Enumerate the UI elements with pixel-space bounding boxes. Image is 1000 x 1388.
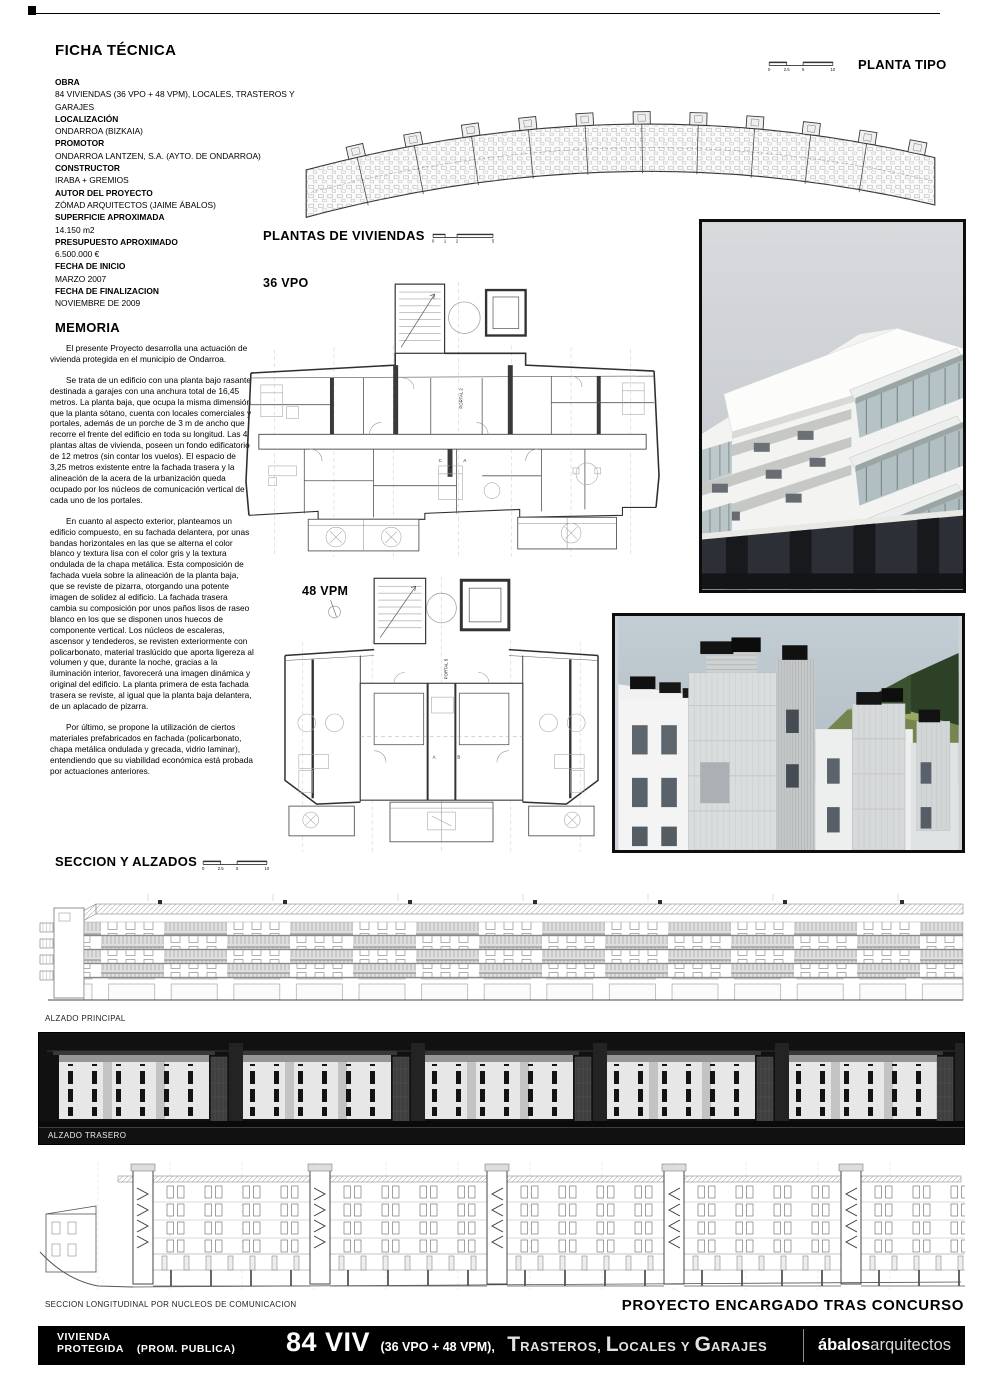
core-mark: B — [450, 464, 453, 469]
field-value: 6.500.000 € — [55, 248, 311, 260]
plantas-heading: PLANTAS DE VIVIENDAS — [263, 228, 425, 243]
svg-text:2.5: 2.5 — [218, 866, 225, 871]
end-tower — [54, 908, 84, 998]
footer-title: 84 VIV (36 VPO + 48 VPM), TRASTEROS, LOC… — [286, 1327, 767, 1358]
footer-protegida: PROTEGIDA — [57, 1343, 124, 1355]
compass — [329, 600, 341, 618]
field-label: FECHA DE INICIO — [55, 260, 311, 272]
svg-text:0: 0 — [768, 67, 771, 72]
top-rule — [28, 13, 940, 14]
photo-front-facade — [699, 219, 966, 593]
scale-bar-planta-tipo: 0 2.5 5 10 — [766, 57, 836, 72]
corridor — [259, 434, 646, 449]
memoria-paragraph: En cuanto al aspecto exterior, planteamo… — [50, 516, 254, 712]
scale-bar-seccion: 0 2.5 5 10 — [200, 856, 270, 871]
footer-left-block: VIVIENDA PROTEGIDA(PROM. PUBLICA) — [57, 1332, 235, 1355]
seccion-heading: SECCION Y ALZADOS — [55, 854, 197, 869]
field-value: ONDARROA LANTZEN, S.A. (AYTO. DE ONDARRO… — [55, 150, 311, 162]
ficha-fields: OBRA 84 VIVIENDAS (36 VPO + 48 VPM), LOC… — [55, 76, 311, 310]
field-label: LOCALIZACIÓN — [55, 113, 311, 125]
footer-84viv: 84 VIV — [286, 1327, 370, 1357]
footer-divider — [803, 1329, 804, 1362]
svg-text:10: 10 — [264, 866, 269, 871]
field-value: ZÓMAD ARQUITECTOS (JAIME ÁBALOS) — [55, 199, 311, 211]
footer-vpo-vpm: (36 VPO + 48 VPM), — [381, 1340, 495, 1354]
portal-label: PORTAL 5 — [443, 658, 448, 679]
svg-text:2: 2 — [456, 239, 459, 244]
memoria-paragraph: Por último, se propone la utilización de… — [50, 722, 254, 777]
svg-text:2.5: 2.5 — [784, 67, 791, 72]
stair-core — [395, 284, 525, 353]
elevator — [461, 580, 509, 630]
central-block — [360, 683, 522, 800]
plan-36vpo-drawing: PORTAL 2 C B A — [245, 278, 660, 560]
seccion-longitudinal-label: SECCION LONGITUDINAL POR NUCLEOS DE COMU… — [45, 1300, 296, 1309]
svg-text:1: 1 — [444, 239, 447, 244]
roof-band — [118, 1176, 961, 1182]
ground-floor — [84, 978, 963, 1000]
core-mark: B — [457, 755, 460, 760]
svg-text:5: 5 — [802, 67, 805, 72]
svg-text:5: 5 — [236, 866, 239, 871]
core-mark: A — [433, 755, 436, 760]
svg-text:0: 0 — [432, 239, 435, 244]
memoria-text: El presente Proyecto desarrolla una actu… — [50, 343, 254, 787]
memoria-paragraph: El presente Proyecto desarrolla una actu… — [50, 343, 254, 365]
alzado-principal-drawing — [38, 892, 965, 1010]
plan-48vpm-drawing: PORTAL 5 A B — [283, 572, 600, 855]
field-value: IRABA + GREMIOS — [55, 174, 311, 186]
core-mark: A — [463, 458, 466, 463]
field-label: SUPERFICIE APROXIMADA — [55, 211, 311, 223]
alzado-principal-label: ALZADO PRINCIPAL — [45, 1014, 126, 1023]
planta-tipo-heading: PLANTA TIPO — [858, 57, 947, 72]
award-note: PROYECTO ENCARGADO TRAS CONCURSO — [622, 1297, 964, 1314]
scale-bar-plantas: 0 1 2 5 — [430, 229, 494, 244]
field-value: 84 VIVIENDAS (36 VPO + 48 VPM), LOCALES,… — [55, 88, 311, 113]
photo-rear-facade — [612, 613, 965, 853]
portal-label: PORTAL 2 — [458, 388, 463, 409]
svg-text:0: 0 — [202, 866, 205, 871]
svg-text:10: 10 — [830, 67, 835, 72]
svg-text:5: 5 — [492, 239, 494, 244]
seccion-longitudinal-drawing — [38, 1156, 965, 1296]
memoria-heading: MEMORIA — [55, 320, 120, 335]
balconies — [289, 802, 594, 842]
roof-band — [96, 904, 963, 914]
planta-tipo-drawing — [283, 80, 958, 222]
left-low-building — [46, 1206, 96, 1272]
memoria-paragraph: Se trata de un edificio con una planta b… — [50, 375, 254, 506]
core-mark: C — [439, 458, 443, 463]
footer-caps: TRASTEROS, LOCALES Y GARAJES — [507, 1338, 767, 1355]
alzado-trasero-panel: ALZADO TRASERO — [38, 1032, 965, 1145]
footer-prom: (PROM. PUBLICA) — [137, 1343, 236, 1355]
field-label: OBRA — [55, 76, 311, 88]
field-label: CONSTRUCTOR — [55, 162, 311, 174]
ficha-heading: FICHA TÉCNICA — [55, 42, 176, 59]
alzado-trasero-label: ALZADO TRASERO — [48, 1131, 126, 1140]
field-label: PROMOTOR — [55, 137, 311, 149]
field-label: AUTOR DEL PROYECTO — [55, 187, 311, 199]
presentation-board: FICHA TÉCNICA OBRA 84 VIVIENDAS (36 VPO … — [0, 0, 1000, 1388]
corrugated-tower — [776, 645, 815, 850]
footer-bar: VIVIENDA PROTEGIDA(PROM. PUBLICA) 84 VIV… — [38, 1326, 965, 1365]
footer-firm-logo: ábalosarquitectos — [818, 1336, 951, 1355]
field-value: ONDARROA (BIZKAIA) — [55, 125, 311, 137]
